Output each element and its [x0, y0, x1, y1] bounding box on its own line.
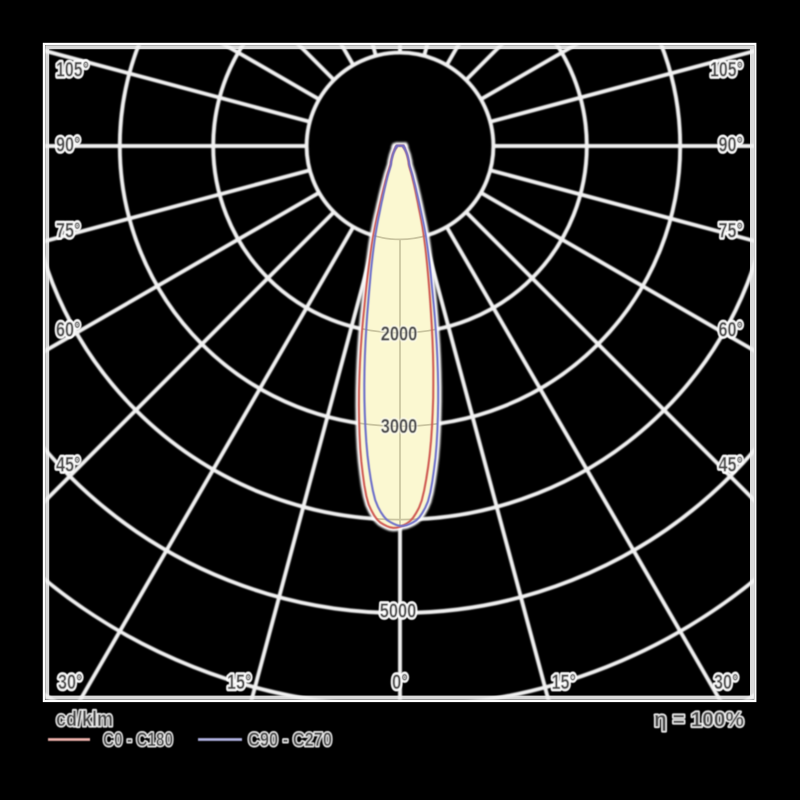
svg-text:3000: 3000	[381, 415, 418, 438]
svg-text:105°: 105°	[56, 59, 89, 82]
svg-text:5000: 5000	[380, 600, 417, 623]
svg-text:15°: 15°	[552, 671, 577, 694]
svg-text:2000: 2000	[381, 323, 418, 346]
svg-text:75°: 75°	[719, 220, 744, 243]
svg-text:90°: 90°	[56, 134, 81, 157]
svg-text:0°: 0°	[392, 671, 408, 694]
svg-text:η = 100%: η = 100%	[654, 708, 744, 732]
svg-text:cd/klm: cd/klm	[56, 707, 113, 731]
svg-text:75°: 75°	[56, 220, 81, 243]
svg-text:15°: 15°	[227, 671, 252, 694]
svg-text:C0 - C180: C0 - C180	[103, 729, 173, 751]
svg-text:45°: 45°	[56, 454, 81, 477]
svg-text:45°: 45°	[719, 454, 744, 477]
svg-text:60°: 60°	[56, 319, 81, 342]
svg-text:105°: 105°	[710, 59, 743, 82]
svg-text:60°: 60°	[719, 319, 744, 342]
svg-text:C90 - C270: C90 - C270	[248, 729, 332, 751]
svg-text:30°: 30°	[58, 671, 83, 694]
svg-text:90°: 90°	[719, 134, 744, 157]
svg-text:30°: 30°	[714, 671, 739, 694]
